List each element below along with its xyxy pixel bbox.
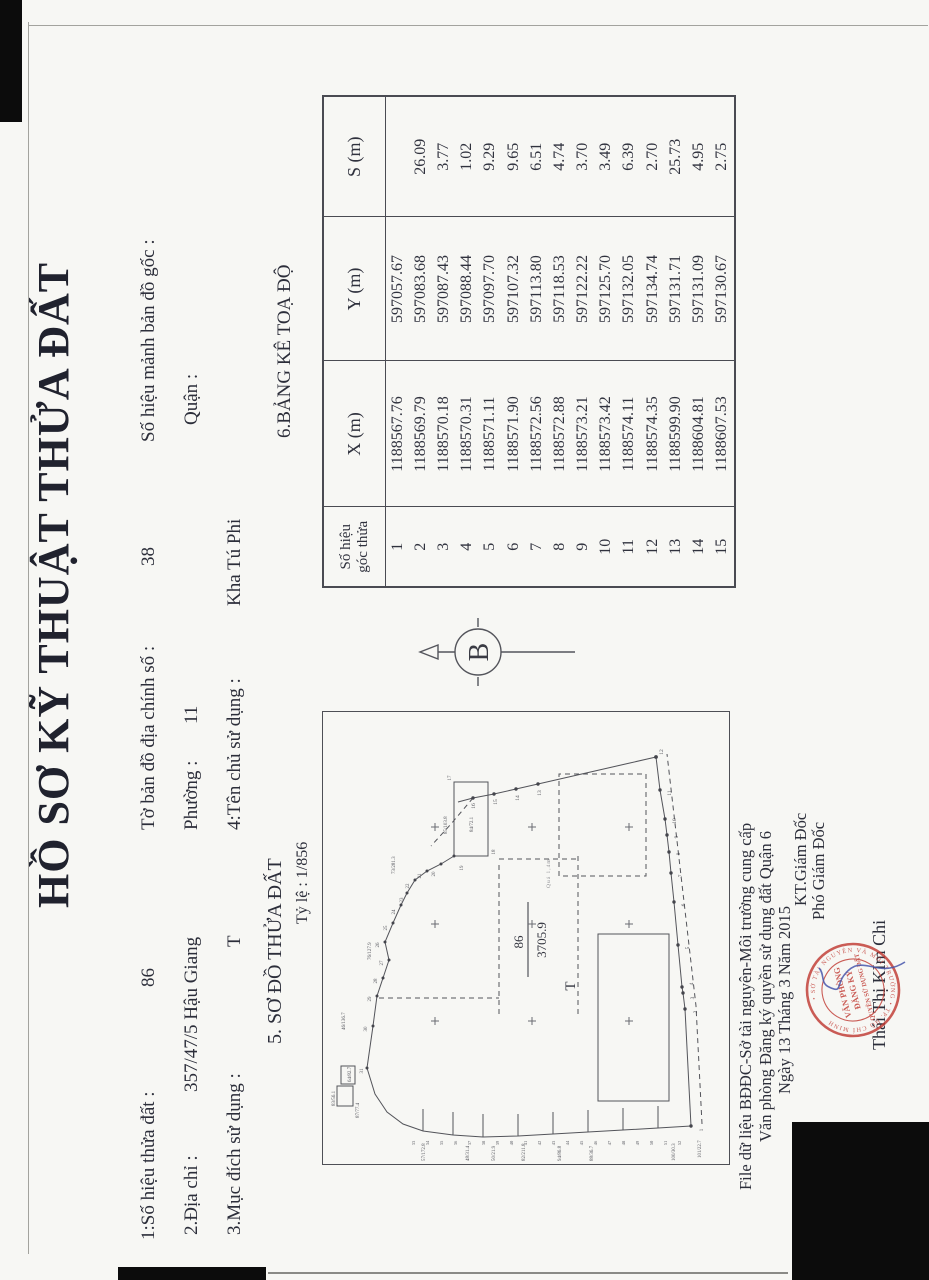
parcel-fraction-label: 57/172.8 [422, 1143, 427, 1161]
purpose-label: 3.Mục đích sử dụng : [224, 1073, 246, 1235]
vertex-label: 22 [406, 883, 411, 889]
cell-s [386, 96, 410, 217]
cell-y: 597088.44 [456, 217, 479, 361]
cell-s: 3.49 [595, 96, 618, 217]
cell-y: 597083.68 [409, 217, 432, 361]
cell-x: 1188572.88 [548, 361, 571, 507]
table-row: 61188571.90597107.329.65 [502, 96, 525, 587]
parcel-fraction-label: 48/31.4 [466, 1145, 471, 1161]
vertex-label: 16 [471, 803, 477, 809]
table-row: 151188607.53597130.672.75 [711, 96, 735, 587]
vertex-label: 39 [495, 1140, 500, 1145]
cell-y: 597113.80 [525, 217, 548, 361]
col-header-y: Y (m) [323, 217, 386, 361]
vertex-label: 5 [685, 946, 691, 949]
vertex-label: 52 [677, 1141, 682, 1146]
vertex-label: 1 [699, 1128, 705, 1131]
cell-x: 1188599.90 [664, 361, 687, 507]
vertex-label: 26 [376, 942, 381, 948]
cell-s: 2.70 [641, 96, 664, 217]
cell-n: 3 [432, 507, 455, 587]
table-row: 71188572.56597113.806.51 [525, 96, 548, 587]
map-sheet-label: Tờ bản đồ địa chính số : [138, 646, 160, 830]
cell-n: 5 [479, 507, 502, 587]
table-header-row: Số hiệu góc thửa X (m) Y (m) S (m) [323, 96, 386, 587]
vertex-label: 14 [515, 795, 521, 801]
footer-kt-director: KT.Giám Đốc [791, 813, 811, 906]
parcel-fraction-label: 83/56.1 [332, 1090, 337, 1106]
table-row: 111188574.11597132.056.39 [618, 96, 641, 587]
vertex-label: 2 [693, 1010, 699, 1013]
main-vertex-numbers: 1 2 3 4 5 6 7 8 9 10 11 12 13 14 15 16 [471, 749, 705, 1131]
outer-vertex-numbers: 17 18 19 20 21 22 23 24 25 26 27 28 29 3… [360, 775, 497, 1074]
map-parcel-number: 86 [511, 935, 526, 949]
ward-label: Phường : [181, 761, 203, 830]
table-row: 91188573.21597122.223.70 [572, 96, 595, 587]
col-header-vertex: Số hiệu góc thửa [323, 507, 386, 587]
vertex-label: 27 [380, 960, 385, 966]
cell-y: 597057.67 [386, 217, 410, 361]
vertex-label: 47 [607, 1140, 612, 1145]
vertex-label: 15 [493, 799, 499, 805]
neighbor-parcel-labels: 83/56.1 87/77.4 64/82.7 46/136.7 76/127.… [332, 816, 703, 1161]
cell-x: 1188607.53 [711, 361, 735, 507]
vertex-label: 48 [621, 1140, 626, 1145]
table-row: 101188573.42597125.703.49 [595, 96, 618, 587]
table-row: 31188570.18597087.433.77 [432, 96, 455, 587]
vertex-label: 10 [672, 818, 678, 824]
table-row: 21188569.79597083.6826.09 [409, 96, 432, 587]
cell-n: 13 [664, 507, 687, 587]
vertex-label: 24 [392, 909, 397, 915]
document-paper: HỒ SƠ KỸ THUẬT THỬA ĐẤT 1:Số hiệu thửa đ… [0, 0, 929, 1280]
purpose-value: T [224, 935, 246, 947]
parcel-fraction-label: 85/103.8 [444, 816, 449, 834]
cell-s: 9.29 [479, 96, 502, 217]
parcel-number-value: 86 [138, 968, 160, 987]
parcel-map: 86 3705.9 T Quá 1,4m 1 2 3 4 5 6 7 8 9 1… [322, 711, 730, 1165]
col-header-x: X (m) [323, 361, 386, 507]
table-row: 121188574.35597134.742.70 [641, 96, 664, 587]
parcel-fraction-label: 82/211.8 [522, 1143, 527, 1161]
cell-x: 1188571.11 [479, 361, 502, 507]
paper-edge-line-bottom [268, 1272, 788, 1274]
vertex-label: 9 [674, 835, 680, 838]
vertex-label: 8 [676, 852, 682, 855]
cell-y: 597107.32 [502, 217, 525, 361]
cell-s: 2.75 [711, 96, 735, 217]
vertex-label: 25 [384, 925, 389, 931]
vertex-label: 6 [681, 903, 687, 906]
vertex-label: 43 [551, 1140, 556, 1145]
vertex-label: 50 [649, 1140, 654, 1145]
address-value: 357/47/5 Hậu Giang [181, 937, 203, 1092]
col-header-vertex-line2: góc thửa [355, 508, 372, 587]
vertex-label: 20 [432, 871, 437, 877]
cell-y: 597132.05 [618, 217, 641, 361]
cell-s: 25.73 [664, 96, 687, 217]
vertex-label: 35 [439, 1140, 444, 1145]
cell-x: 1188574.11 [618, 361, 641, 507]
vertex-label: 31 [360, 1068, 365, 1074]
vertex-label: 13 [537, 790, 543, 796]
table-row: 41188570.31597088.441.02 [456, 96, 479, 587]
table-row: 131188599.90597131.7125.73 [664, 96, 687, 587]
map-alley-label: Quá 1,4m [546, 858, 552, 888]
cell-x: 1188570.31 [456, 361, 479, 507]
footer-source-line: File dữ liệu BĐĐC-Sở tài nguyên-Môi trườ… [736, 823, 756, 1190]
scan-black-corner [792, 1122, 929, 1280]
parcel-fraction-label: 46/136.7 [342, 1012, 347, 1030]
official-stamp: • SỞ TÀI NGUYÊN VÀ MÔI TRƯỜNG • TP. HỒ C… [789, 926, 917, 1054]
vertex-label: 49 [635, 1140, 640, 1145]
cell-x: 1188567.76 [386, 361, 410, 507]
cell-x: 1188573.42 [595, 361, 618, 507]
parcel-fraction-label: 87/77.4 [356, 1102, 361, 1118]
scan-black-edge-left [118, 1267, 266, 1280]
vertex-label: 28 [374, 978, 379, 984]
table-section-title: 6.BẢNG KÊ TOẠ ĐỘ [274, 265, 296, 438]
vertex-label: 12 [659, 749, 665, 755]
cell-n: 14 [687, 507, 710, 587]
cell-n: 7 [525, 507, 548, 587]
cell-n: 4 [456, 507, 479, 587]
vertex-label: 44 [565, 1140, 570, 1145]
vertex-label: 29 [368, 996, 373, 1002]
map-parcel-use: T [563, 981, 579, 990]
vertex-label: 51 [663, 1141, 668, 1146]
parcel-fraction-label: 100/30.3 [672, 1143, 677, 1161]
vertex-label: 33 [411, 1140, 416, 1145]
page-title: HỒ SƠ KỸ THUẬT THỬA ĐẤT [28, 262, 79, 908]
grid-crosses [431, 823, 633, 1025]
cell-n: 1 [386, 507, 410, 587]
diagram-scale-label: Tỷ lệ : 1/856 [294, 842, 312, 924]
cell-x: 1188604.81 [687, 361, 710, 507]
cell-n: 9 [572, 507, 595, 587]
cell-y: 597122.22 [572, 217, 595, 361]
scan-black-edge-top [0, 0, 22, 122]
parcel-number-label: 1:Số hiệu thửa đất : [138, 1091, 160, 1240]
table-row: 81188572.88597118.534.74 [548, 96, 571, 587]
cell-n: 11 [618, 507, 641, 587]
map-parcel-area: 3705.9 [534, 922, 549, 958]
district-label: Quận : [181, 374, 203, 425]
map-sheet-value: 38 [138, 547, 160, 566]
cell-y: 597097.70 [479, 217, 502, 361]
coordinate-table: Số hiệu góc thửa X (m) Y (m) S (m) 11188… [322, 95, 736, 588]
cell-y: 597118.53 [548, 217, 571, 361]
vertex-label: 4 [689, 982, 695, 985]
owner-value: Kha Tú Phi [224, 519, 246, 606]
north-arrow: B [415, 612, 585, 692]
address-label: 2.Địa chỉ : [181, 1155, 203, 1235]
owner-label: 4:Tên chủ sử dụng : [224, 678, 246, 830]
cell-s: 9.65 [502, 96, 525, 217]
vertex-label: 11 [667, 790, 673, 796]
parcel-fraction-label: 50/21.9 [492, 1145, 497, 1161]
cell-x: 1188569.79 [409, 361, 432, 507]
cell-n: 15 [711, 507, 735, 587]
cell-s: 1.02 [456, 96, 479, 217]
cell-s: 4.74 [548, 96, 571, 217]
parcel-fraction-label: 88/36.7 [590, 1145, 595, 1161]
original-sheet-label: Số hiệu mảnh bản đồ gốc : [138, 239, 160, 442]
cell-y: 597087.43 [432, 217, 455, 361]
table-row: 11188567.76597057.67 [386, 96, 410, 587]
cell-y: 597131.71 [664, 217, 687, 361]
footer-deputy-director: Phó Giám Đốc [809, 822, 829, 920]
footer-office-line: Văn phòng Đăng ký quyền sử dụng đất Quận… [756, 831, 776, 1142]
ward-value: 11 [181, 706, 203, 724]
vertex-label: 42 [537, 1141, 542, 1146]
cell-s: 6.51 [525, 96, 548, 217]
parcel-fraction-label: 94/86.8 [558, 1145, 563, 1161]
vertex-label: 45 [579, 1140, 584, 1145]
parcel-fraction-label: 84/72.1 [470, 816, 475, 832]
cell-s: 3.70 [572, 96, 595, 217]
col-header-vertex-line1: Số hiệu [338, 508, 355, 587]
vertex-label: 3 [690, 996, 696, 999]
north-letter: B [464, 643, 495, 662]
parcel-map-drawing: 86 3705.9 T Quá 1,4m 1 2 3 4 5 6 7 8 9 1… [323, 712, 729, 1164]
cell-y: 597125.70 [595, 217, 618, 361]
cell-s: 26.09 [409, 96, 432, 217]
cell-x: 1188570.18 [432, 361, 455, 507]
parcel-fraction-label: 101/22.7 [698, 1140, 703, 1158]
col-header-s: S (m) [323, 96, 386, 217]
cell-y: 597134.74 [641, 217, 664, 361]
table-row: 51188571.11597097.709.29 [479, 96, 502, 587]
cell-n: 12 [641, 507, 664, 587]
paper-edge-line-top [28, 22, 29, 1254]
vertex-label: 21 [418, 873, 423, 879]
cell-x: 1188572.56 [525, 361, 548, 507]
cell-n: 10 [595, 507, 618, 587]
vertex-label: 37 [467, 1140, 472, 1145]
cell-n: 8 [548, 507, 571, 587]
vertex-label: 40 [509, 1140, 514, 1145]
vertex-label: 36 [453, 1140, 458, 1145]
parcel-fraction-label: 76/127.9 [368, 942, 373, 960]
cell-n: 2 [409, 507, 432, 587]
paper-edge-line-right [28, 25, 928, 26]
cell-s: 6.39 [618, 96, 641, 217]
vertex-label: 38 [481, 1140, 486, 1145]
vertex-label: 19 [460, 865, 465, 871]
strip-vertex-numbers: 33 34 35 36 37 38 39 40 41 42 43 44 45 4… [411, 1140, 682, 1145]
vertex-label: 46 [593, 1140, 598, 1145]
parcel-fraction-label: 73/281.3 [392, 856, 397, 874]
cell-s: 4.95 [687, 96, 710, 217]
cell-x: 1188573.21 [572, 361, 595, 507]
table-row: 141188604.81597131.094.95 [687, 96, 710, 587]
cell-s: 3.77 [432, 96, 455, 217]
cell-n: 6 [502, 507, 525, 587]
vertex-dots [366, 755, 693, 1128]
vertex-label: 23 [400, 897, 405, 903]
vertex-label: 18 [492, 849, 497, 855]
vertex-label: 7 [678, 874, 684, 877]
vertex-label: 17 [448, 775, 453, 781]
vertex-label: 30 [364, 1026, 369, 1032]
parcel-fraction-label: 64/82.7 [348, 1066, 353, 1082]
cell-y: 597131.09 [687, 217, 710, 361]
cell-y: 597130.67 [711, 217, 735, 361]
scanned-page: HỒ SƠ KỸ THUẬT THỬA ĐẤT 1:Số hiệu thửa đ… [0, 0, 929, 1280]
cell-x: 1188571.90 [502, 361, 525, 507]
cell-x: 1188574.35 [641, 361, 664, 507]
diagram-section-title: 5. SƠ ĐỒ THỬA ĐẤT [264, 858, 287, 1044]
